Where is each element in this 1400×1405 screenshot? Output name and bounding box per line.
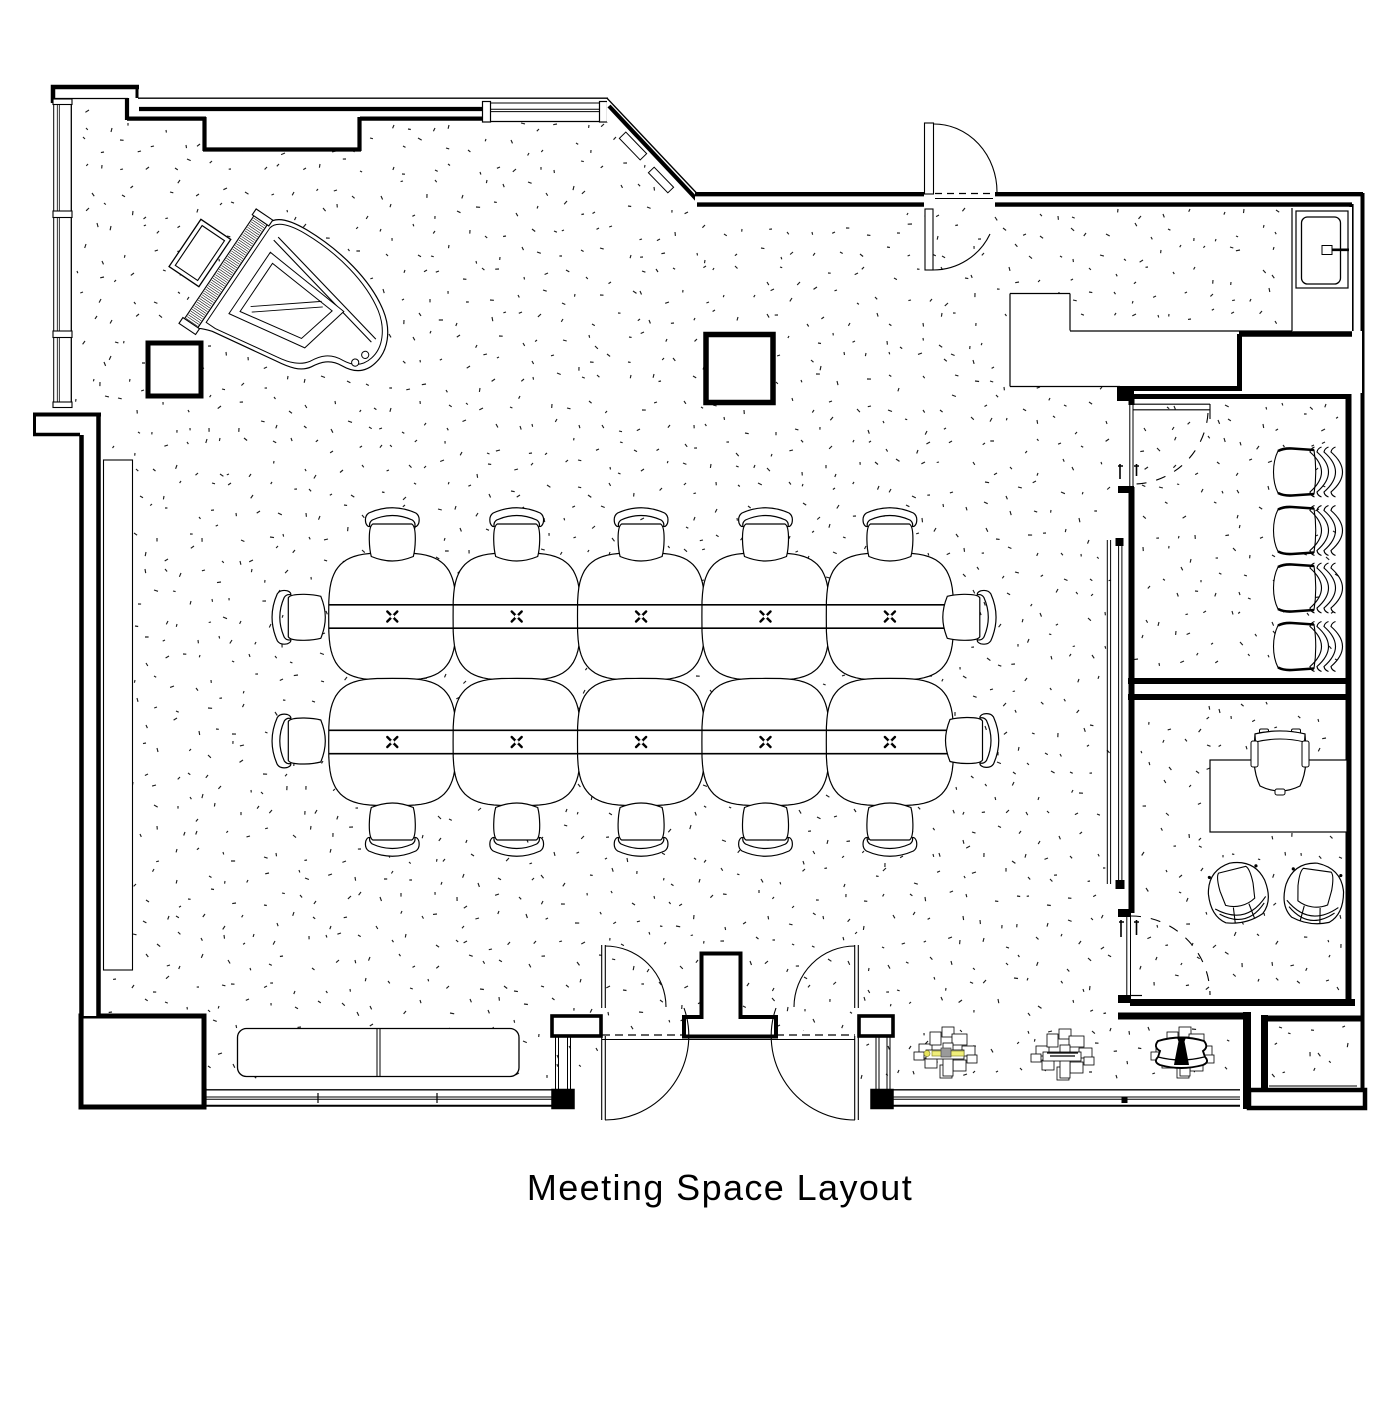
svg-text:Meeting Space Layout: Meeting Space Layout <box>527 1167 913 1208</box>
